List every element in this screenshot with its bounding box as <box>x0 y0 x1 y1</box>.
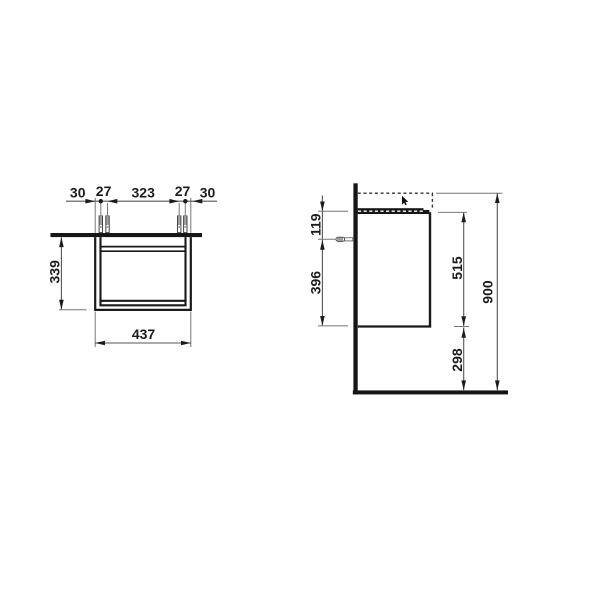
svg-text:515: 515 <box>449 256 465 280</box>
svg-text:30: 30 <box>70 185 86 201</box>
svg-text:437: 437 <box>132 326 156 342</box>
svg-text:900: 900 <box>480 280 496 304</box>
svg-text:298: 298 <box>449 348 465 372</box>
svg-text:339: 339 <box>47 260 63 284</box>
svg-text:396: 396 <box>308 271 324 295</box>
svg-text:30: 30 <box>200 185 216 201</box>
svg-text:27: 27 <box>175 183 191 199</box>
svg-text:119: 119 <box>308 213 324 236</box>
svg-text:27: 27 <box>96 183 112 199</box>
svg-text:323: 323 <box>132 185 156 201</box>
